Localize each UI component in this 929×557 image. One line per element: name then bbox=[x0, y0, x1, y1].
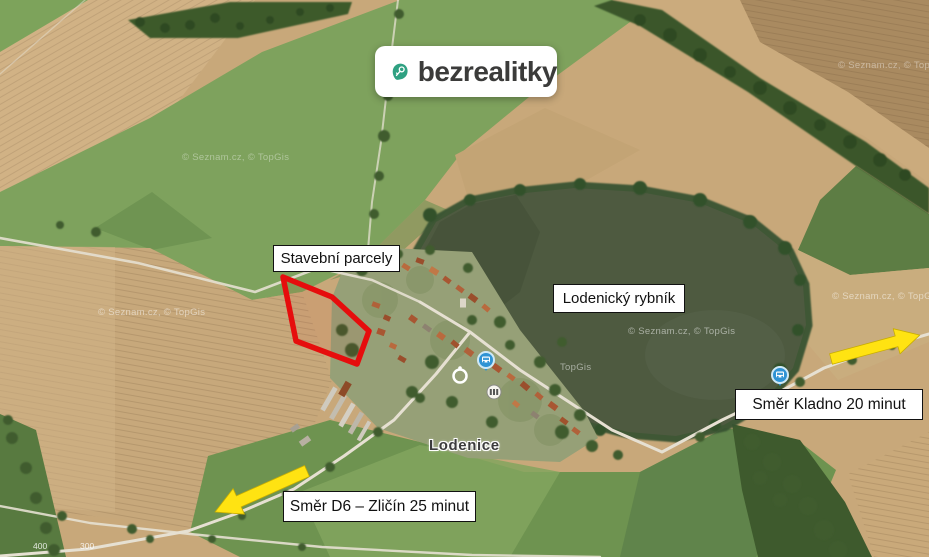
map-watermark: © Seznam.cz, © TopGis bbox=[182, 152, 289, 163]
poi-building-icon bbox=[487, 385, 501, 399]
bezrealitky-logo: bezrealitky bbox=[375, 46, 557, 97]
label-building-parcels: Stavební parcely bbox=[273, 245, 400, 272]
label-pond: Lodenický rybník bbox=[553, 284, 685, 313]
brand-name: bezrealitky bbox=[418, 56, 557, 88]
brand-pin-icon bbox=[390, 52, 410, 92]
label-direction-kladno: Směr Kladno 20 minut bbox=[735, 389, 923, 420]
label-direction-d6: Směr D6 – Zličín 25 minut bbox=[283, 491, 476, 522]
map-watermark: © Seznam.cz, © TopGis bbox=[838, 60, 929, 71]
elevation-label: 400 bbox=[33, 541, 47, 551]
elevation-label: 300 bbox=[80, 541, 94, 551]
map-watermark: © Seznam.cz, © TopGis bbox=[628, 326, 735, 337]
map-watermark: © Seznam.cz, © TopGis bbox=[832, 291, 929, 302]
town-label: Lodenice bbox=[429, 437, 500, 454]
listing-map-screenshot: © Seznam.cz, © TopGis © Seznam.cz, © Top… bbox=[0, 0, 929, 557]
map-watermark: © Seznam.cz, © TopGis bbox=[98, 307, 205, 318]
map-watermark: TopGis bbox=[560, 362, 591, 373]
